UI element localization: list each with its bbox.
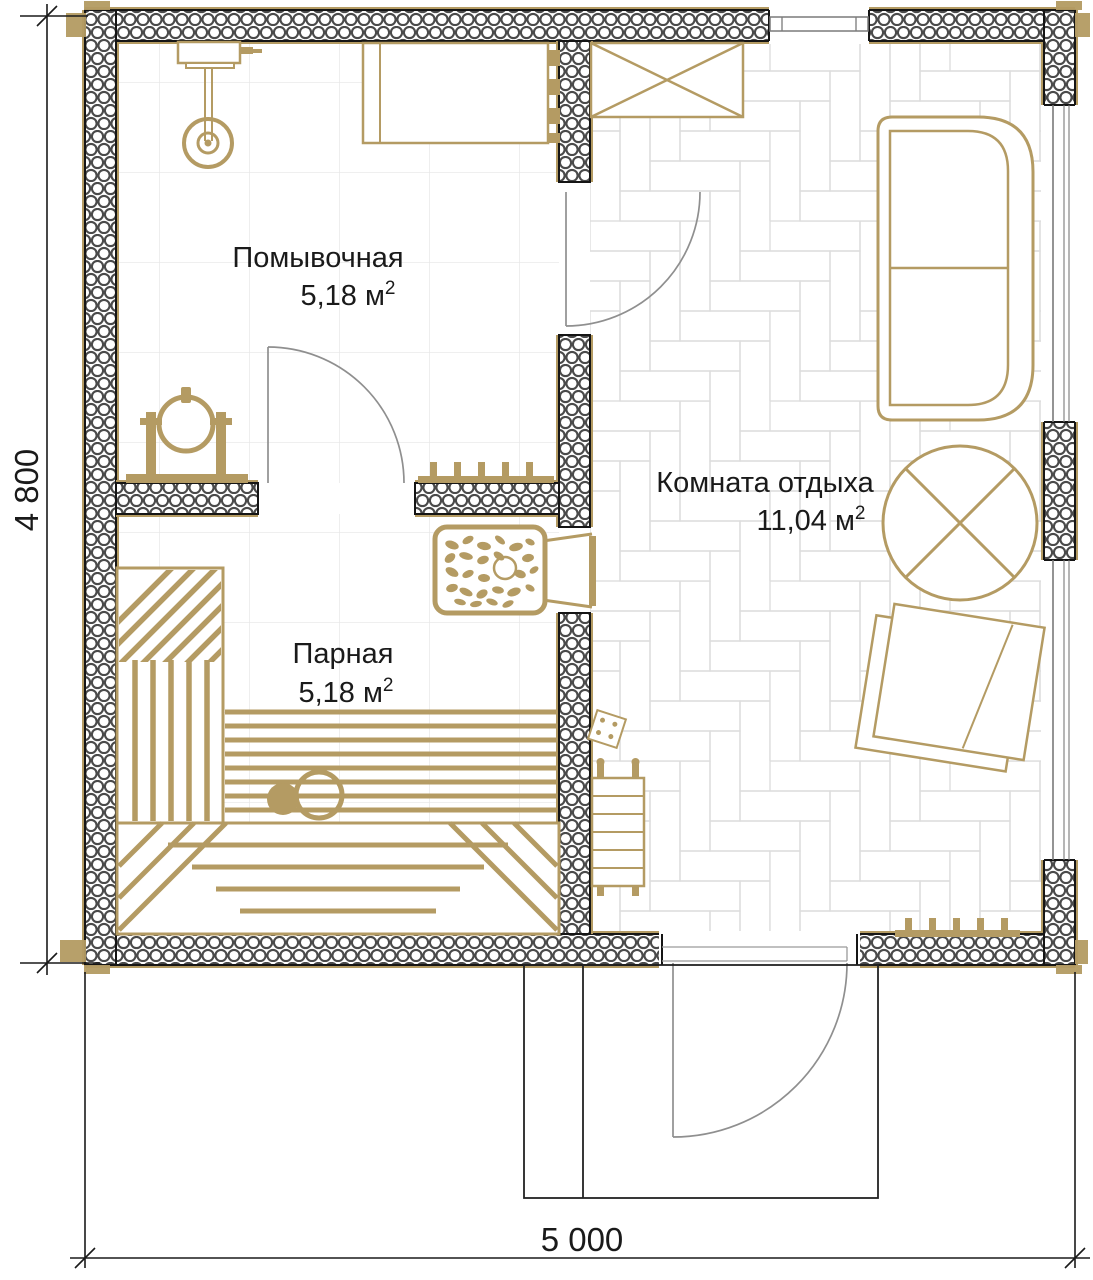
area-label-washing: 5,18 м2 bbox=[300, 278, 395, 312]
dimension-height-label: 4 800 bbox=[8, 449, 45, 532]
entry-door bbox=[673, 963, 847, 1137]
wall-partition-lower bbox=[559, 613, 590, 934]
floor-plan-page: Помывочная 5,18 м2 Парная 5,18 м2 Комнат… bbox=[0, 0, 1093, 1280]
armchair bbox=[855, 601, 1044, 773]
wall-bottom bbox=[85, 934, 1075, 965]
sauna-stove bbox=[435, 527, 596, 613]
window-right-upper bbox=[1041, 105, 1078, 422]
round-table bbox=[883, 446, 1037, 600]
wall-divider-left bbox=[116, 483, 258, 514]
room-label-steam: Парная bbox=[293, 638, 394, 670]
shelf-unit bbox=[592, 758, 644, 896]
window-right-lower bbox=[1041, 560, 1078, 860]
washing-bench bbox=[363, 43, 560, 143]
wall-divider-right bbox=[415, 483, 559, 514]
room-label-washing: Помывочная bbox=[232, 242, 403, 274]
floor-plan-drawing: Помывочная 5,18 м2 Парная 5,18 м2 Комнат… bbox=[0, 0, 1093, 1280]
dimension-width-label: 5 000 bbox=[541, 1221, 624, 1258]
area-label-lounge: 11,04 м2 bbox=[757, 503, 866, 537]
wardrobe bbox=[591, 43, 743, 117]
window-top bbox=[769, 6, 869, 44]
steam-bench-lower bbox=[117, 823, 559, 934]
porch bbox=[524, 965, 878, 1198]
wall-left bbox=[85, 10, 116, 965]
area-label-steam: 5,18 м2 bbox=[298, 675, 393, 709]
room-label-lounge: Комната отдыха bbox=[656, 467, 874, 499]
wall-partition-upper bbox=[559, 41, 590, 182]
entry-door-opening bbox=[659, 931, 860, 968]
wall-top bbox=[85, 10, 1075, 41]
wall-partition-middle bbox=[559, 335, 590, 527]
sofa bbox=[878, 117, 1033, 420]
